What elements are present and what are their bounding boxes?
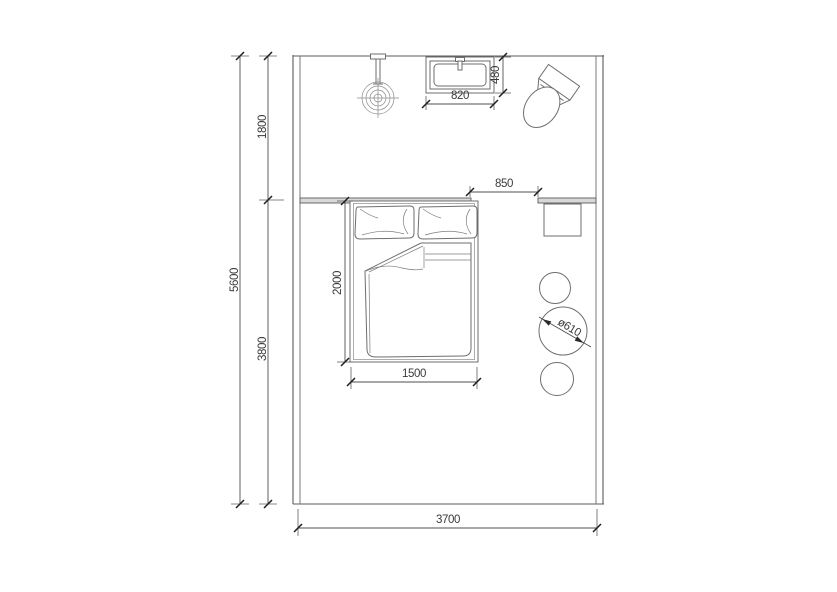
dim-label-basin-depth: 480: [490, 66, 502, 84]
dim-room-width: 3700: [294, 509, 601, 536]
dim-label-bath-zone: 1800: [257, 115, 269, 139]
dim-label-basin-width: 820: [451, 90, 469, 102]
partition-right-segment: [538, 198, 596, 203]
double-bed-icon: [350, 201, 478, 362]
stool-bottom-icon: [541, 363, 574, 396]
dim-zone-depths: 1800 3800: [257, 52, 284, 508]
dim-bed-width: 1500: [347, 367, 481, 389]
dim-label-room-height: 5600: [229, 268, 241, 292]
dim-label-bedroom-zone: 3800: [257, 337, 269, 361]
dim-room-height: 5600: [229, 52, 249, 508]
dim-label-room-width: 3700: [436, 514, 460, 526]
left-wall: [293, 55, 300, 504]
dim-opening-width: 850: [466, 178, 542, 197]
wash-basin-icon: [426, 57, 494, 93]
right-wall: [596, 55, 603, 504]
tap-spout-icon: [458, 61, 462, 70]
dim-label-bed-length: 2000: [332, 271, 344, 295]
side-table-icon: [544, 204, 581, 236]
pendant-light-icon: [357, 54, 399, 118]
floor-plan-canvas: ø610 5600 1800 3800 2000 1500: [0, 0, 837, 592]
stool-top-icon: [540, 273, 571, 304]
floor-plan-drawing: ø610 5600 1800 3800 2000 1500: [0, 0, 837, 592]
stool-column: [539, 273, 587, 396]
pillow-right-icon: [418, 206, 477, 239]
toilet-icon: [514, 64, 580, 136]
dim-label-bed-width: 1500: [402, 368, 426, 380]
pillow-left-icon: [355, 206, 414, 239]
dim-label-opening-width: 850: [495, 178, 513, 190]
